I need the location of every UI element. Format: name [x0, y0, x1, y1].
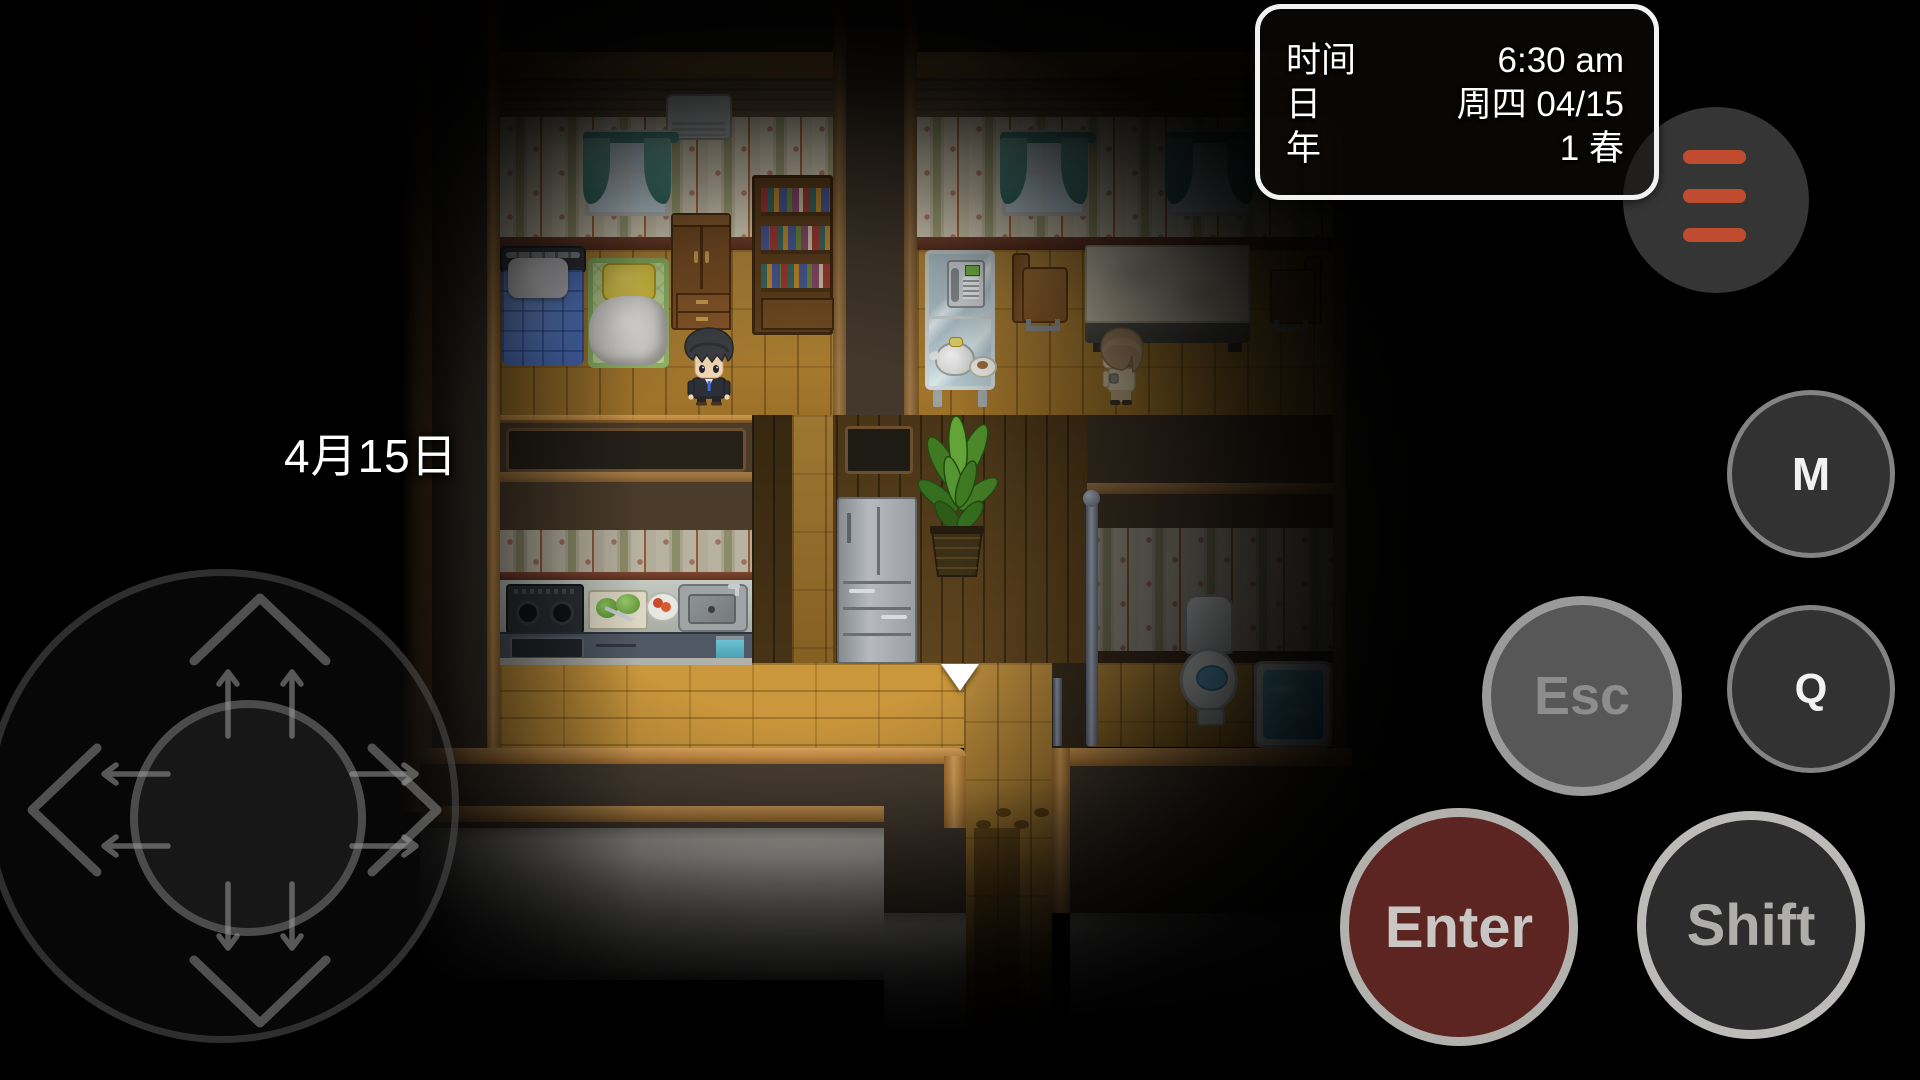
toilet-bowl: [1180, 648, 1238, 712]
curtain-left: [1000, 138, 1027, 204]
map-date-label: 4月15日: [284, 420, 458, 486]
fridge-drawer-handle: [881, 615, 907, 619]
kitchen-cabinet-base: [500, 658, 752, 665]
clock-value-year: 1 春: [1560, 127, 1624, 171]
telephone: [947, 260, 985, 308]
south-wall-right: [1070, 766, 1360, 913]
refrigerator: [837, 497, 917, 664]
chair-seat: [1022, 267, 1068, 323]
potted-plant: [914, 412, 1000, 582]
down-arrow-icon: [283, 884, 301, 948]
shift-button[interactable]: Shift: [1637, 811, 1865, 1039]
wardrobe-handle: [705, 251, 709, 263]
stove: [506, 584, 584, 634]
books: [761, 264, 830, 292]
fridge-recess: [845, 426, 913, 474]
mid-corridor-floor: [792, 415, 833, 663]
kitchen-wall-base: [500, 572, 752, 580]
south-wall-corner: [884, 828, 966, 913]
joystick-arrows: [0, 560, 500, 1080]
drawer-handle: [696, 317, 708, 321]
left-arrow-icon: [104, 837, 168, 855]
left-arrow-icon: [104, 765, 168, 783]
wardrobe-top: [673, 215, 729, 227]
hamburger-icon: [1683, 228, 1746, 242]
clock-row-year: 年 1 春: [1286, 127, 1624, 171]
south-wall-right-trim: [1052, 748, 1070, 913]
kitchen-wallpaper: [500, 530, 752, 572]
water-pipe: [1086, 498, 1098, 746]
wardrobe-door-split: [700, 227, 703, 289]
south-wall-corner-plaster: [884, 913, 966, 1060]
food: [977, 361, 988, 369]
glass-cabinet: [925, 250, 995, 390]
phone-screen: [965, 265, 980, 276]
curtain-left: [1166, 138, 1193, 204]
bed-blue: [500, 246, 586, 368]
bathroom-wall: [1087, 415, 1333, 528]
curtain-right: [1227, 138, 1254, 204]
kitchen-cabinet-front: [500, 632, 752, 660]
bedroom-window: [585, 130, 669, 216]
wardrobe: [671, 213, 731, 330]
clock-value-time: 6:30 am: [1498, 39, 1624, 83]
curtain-right: [644, 138, 671, 204]
bathtub-water: [1263, 670, 1323, 739]
drawer-handle: [696, 300, 708, 304]
curtain-left: [583, 138, 610, 204]
up-arrow-icon: [219, 672, 237, 736]
game-screen: 4月15日 时间 6:30 am 日 周四 04/15 年 1 春: [0, 0, 1920, 1080]
toilet-lid: [1184, 594, 1234, 654]
kitchen-shelf-trim: [500, 472, 752, 482]
curtain-right: [1061, 138, 1088, 204]
table-top: [1085, 245, 1250, 323]
oven-door: [510, 637, 584, 659]
drain: [708, 606, 715, 613]
enter-button[interactable]: Enter: [1340, 808, 1578, 1046]
footprint: [1034, 808, 1049, 817]
dining-chair-right: [1270, 256, 1322, 335]
right-arrow-icon: [352, 765, 416, 783]
phone-handset: [951, 268, 959, 302]
shelf-cabinet: [761, 298, 834, 330]
dining-window-1: [1002, 130, 1086, 216]
bed-sheet-white: [508, 258, 568, 298]
toilet: [1178, 592, 1240, 726]
clock-label-time: 时间: [1286, 39, 1356, 83]
books: [761, 226, 830, 254]
bathroom-wall-trim: [1087, 483, 1333, 494]
books: [761, 188, 830, 216]
stove-vents: [514, 589, 574, 594]
dining-chair-left: [1012, 253, 1064, 335]
south-wall-left-top: [420, 748, 966, 764]
bed-green: [588, 258, 669, 368]
up-arrow-icon: [283, 672, 301, 736]
character-boy-black-hair: [681, 326, 737, 406]
down-chevron-icon: [194, 960, 326, 1023]
toilet-base: [1197, 708, 1225, 726]
right-arrow-icon: [352, 837, 416, 855]
chair-seat: [1270, 269, 1316, 324]
m-button[interactable]: M: [1727, 390, 1895, 558]
fridge-drawer: [843, 633, 911, 636]
bathtub: [1254, 661, 1332, 748]
clock-panel: 时间 6:30 am 日 周四 04/15 年 1 春: [1255, 4, 1659, 200]
clock-row-time: 时间 6:30 am: [1286, 39, 1624, 83]
left-chevron-icon: [32, 748, 97, 872]
mid-wall-strip: [752, 415, 792, 663]
fridge-drawer: [843, 581, 911, 584]
footprint: [976, 820, 991, 829]
down-arrow-icon: [219, 884, 237, 948]
up-chevron-icon: [194, 598, 326, 661]
fridge-door-split: [877, 507, 880, 575]
fridge-drawer: [843, 607, 911, 610]
ac-slats: [672, 122, 726, 136]
character-resident-brown-hair: [1097, 326, 1147, 408]
cutting-board: [588, 590, 648, 630]
tomato-plate: [646, 592, 680, 622]
fridge-handle: [847, 513, 851, 543]
dining-window-2: [1168, 130, 1252, 216]
kitchen-top-trim: [500, 415, 752, 423]
stove-burner: [516, 601, 540, 625]
sink-basin: [688, 594, 736, 624]
toilet-water: [1196, 665, 1228, 691]
esc-button[interactable]: Esc: [1482, 596, 1682, 796]
pipe-cap: [1083, 490, 1100, 507]
stove-burner: [550, 601, 574, 625]
chair-leg: [1026, 319, 1060, 331]
bookshelf: [752, 175, 833, 335]
hamburger-icon: [1683, 189, 1746, 203]
footprint: [996, 808, 1011, 817]
kitchen-vent-window: [506, 428, 746, 472]
south-wall-right-plaster: [1070, 913, 1360, 1060]
white-blanket: [589, 296, 667, 366]
virtual-joystick[interactable]: [0, 560, 500, 1080]
cabbage: [616, 594, 640, 614]
fridge-drawer-handle: [849, 589, 875, 593]
sink: [678, 584, 748, 632]
table-leg: [1228, 343, 1242, 352]
teapot-lid: [949, 337, 963, 347]
phone-keypad: [963, 277, 979, 299]
south-wall-right-top: [1070, 748, 1352, 766]
faucet: [735, 584, 739, 596]
footprint: [1014, 820, 1029, 829]
cabinet-leg: [978, 390, 987, 407]
clock-row-day: 日 周四 04/15: [1286, 83, 1624, 127]
clock-label-year: 年: [1286, 127, 1321, 171]
destination-arrow-cursor: [941, 664, 979, 691]
wardrobe-drawer: [676, 293, 731, 313]
teapot-spout: [928, 351, 940, 362]
cabinet-leg: [933, 390, 942, 407]
chair-leg: [1274, 320, 1308, 332]
tomatoes: [661, 602, 671, 612]
wardrobe-handle: [694, 251, 698, 263]
snack-plate: [969, 356, 997, 378]
drawer-line: [596, 644, 636, 647]
exit-corridor-shadow: [974, 828, 1020, 1080]
hamburger-icon: [1683, 150, 1746, 164]
drain-pipe: [1053, 678, 1062, 746]
cabinet-shelf-line: [929, 316, 991, 319]
clock-label-day: 日: [1286, 83, 1321, 127]
clock-value-day: 周四 04/15: [1457, 83, 1624, 127]
q-button[interactable]: Q: [1727, 605, 1895, 773]
